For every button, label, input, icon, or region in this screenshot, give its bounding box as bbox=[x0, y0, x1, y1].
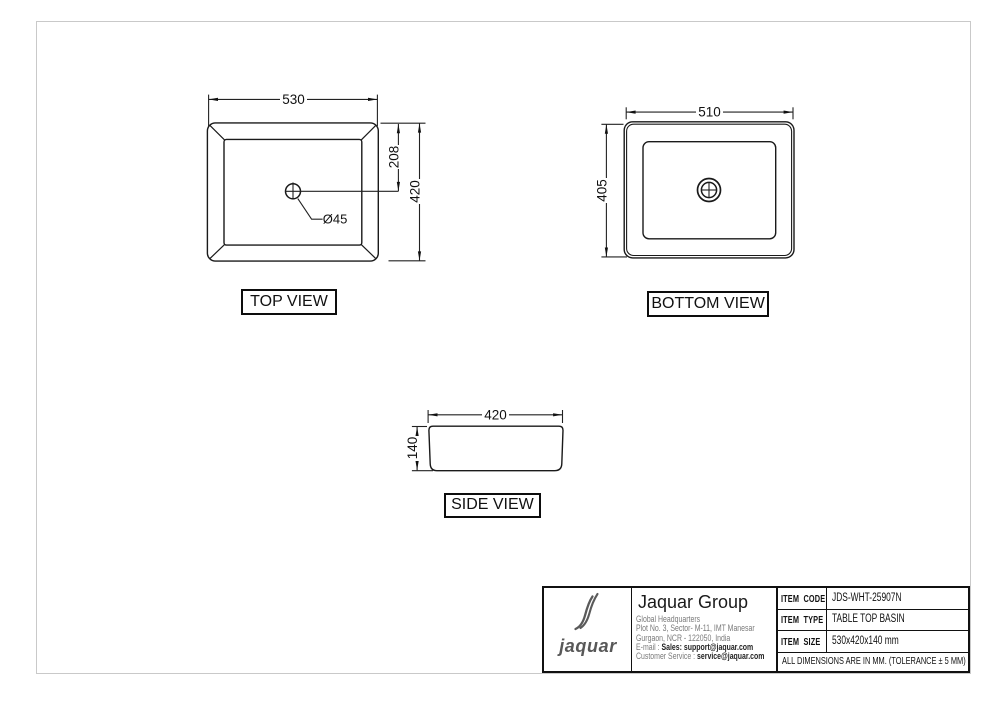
svg-text:530: 530 bbox=[282, 92, 305, 107]
svg-text:405: 405 bbox=[594, 179, 609, 202]
svg-text:140: 140 bbox=[405, 437, 420, 460]
svg-text:208: 208 bbox=[386, 146, 401, 169]
svg-text:Ø45: Ø45 bbox=[323, 212, 348, 227]
svg-text:510: 510 bbox=[698, 105, 721, 120]
svg-text:420: 420 bbox=[484, 407, 507, 422]
svg-text:420: 420 bbox=[408, 180, 423, 203]
